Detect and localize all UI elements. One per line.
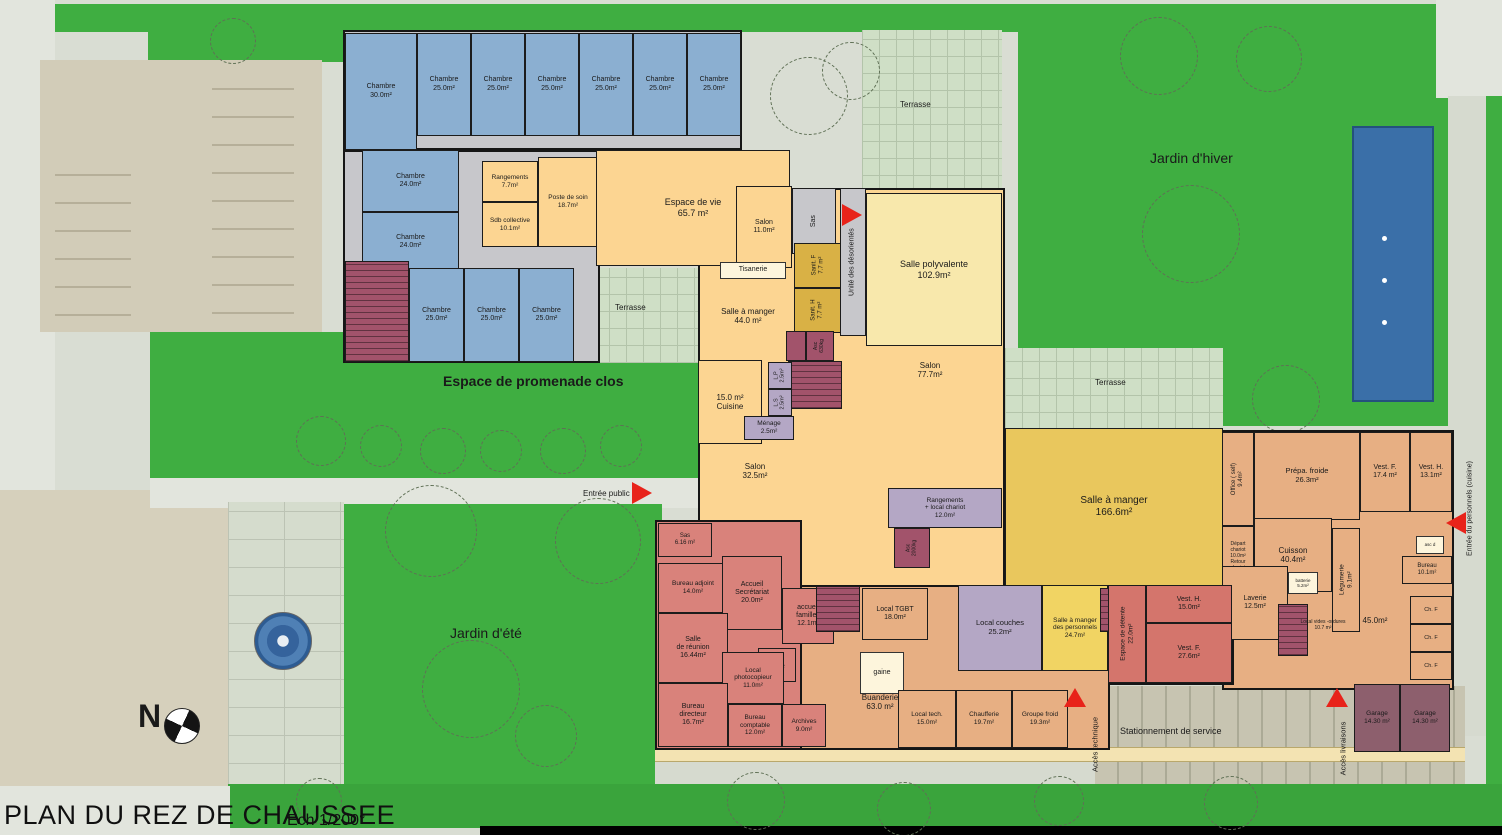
room-label: Bureau adjoint 14.0m²: [672, 580, 714, 595]
room-label: Ch. F: [1424, 607, 1437, 613]
room-label: Archives 9.0m²: [792, 718, 817, 733]
room-label: Rangements + local chariot 12.0m²: [925, 497, 965, 520]
room-label: Salon 77.7m²: [918, 361, 943, 380]
room-label: Office ( self) 9.4m²: [1231, 463, 1245, 495]
plan-scale: Ech 1/200°: [287, 812, 365, 830]
room-bureau: Bureau 10.1m²: [1402, 556, 1452, 584]
room-label: Espace de détente 22.0m²: [1119, 607, 1134, 661]
room-label: Chambre 25.0m²: [646, 76, 675, 93]
room-label: Vest. H. 13.1m²: [1419, 464, 1444, 481]
room-chambre: Chambre 25.0m²: [633, 33, 687, 136]
room-local: Local photocopieur 11.0m²: [722, 652, 784, 704]
room-rangements: Rangements + local chariot 12.0m²: [888, 488, 1002, 528]
room-label: 15.0 m² Cuisine: [716, 393, 743, 412]
room-l-s: L.S 2.5m²: [768, 389, 792, 416]
room-label: 45.0m²: [1363, 616, 1388, 625]
room-label: Salle de réunion 16.44m²: [676, 636, 709, 661]
rooms-layer: Chambre 30.0m²Chambre 25.0m²Chambre 25.0…: [0, 0, 1502, 835]
room-garage: Garage 14.30 m²: [1400, 684, 1450, 752]
room-chaufferie: Chaufferie 19.7m²: [956, 690, 1012, 748]
label-entree-public: Entrée public: [583, 489, 630, 498]
room-label: Accueil Secrétariat 20.0m²: [735, 581, 769, 606]
room-label: Vest. H. 15.0m²: [1177, 596, 1202, 613]
room-label: Asc 2000kg: [906, 540, 918, 556]
room-label: Chambre 24.0m²: [396, 234, 425, 251]
room-label: Salle à manger 166.6m²: [1080, 495, 1147, 519]
room-sanit-f: Sanit. F 7.7 m²: [794, 243, 842, 288]
room-label: Unité des désorientés: [849, 228, 857, 296]
room-label: Bureau comptable 12.0m²: [740, 714, 770, 737]
label-terrasse-mid: Terrasse: [1095, 378, 1126, 387]
room-accueil: Accueil Secrétariat 20.0m²: [722, 556, 782, 630]
room-asc: Asc 630kg: [806, 331, 834, 361]
label-terrasse-north: Terrasse: [615, 303, 646, 312]
room-label: Tisanerie: [739, 266, 768, 274]
room-bureau: Bureau directeur 16.7m²: [658, 683, 728, 747]
room-chambre: Chambre 25.0m²: [417, 33, 471, 136]
room-label: Sas: [810, 215, 818, 227]
room-chambre: Chambre 25.0m²: [409, 268, 464, 362]
room-chambre: Chambre 24.0m²: [362, 150, 459, 212]
room-label: Vest. F. 27.6m²: [1178, 645, 1201, 662]
room-garage: Garage 14.30 m²: [1354, 684, 1400, 752]
room-pr-pa-froide: Prépa. froide 26.3m²: [1254, 432, 1360, 520]
arrow-entree-public: [632, 482, 652, 504]
room-label: Salle polyvalente 102.9m²: [900, 259, 968, 280]
room-label: Groupe froid 19.3m²: [1022, 711, 1058, 726]
room-chambre: Chambre 25.0m²: [519, 268, 574, 362]
room-stair: [816, 586, 860, 632]
room-label: Légumerie 9.1m²: [1338, 565, 1353, 596]
room-label: Garage 14.30 m²: [1412, 710, 1438, 725]
room-label: Garage 14.30 m²: [1364, 710, 1390, 725]
room-label: Asc 630kg: [814, 339, 826, 353]
room-label: Laverie 12.5m²: [1244, 595, 1267, 612]
room-office-self: Office ( self) 9.4m²: [1222, 432, 1254, 526]
room-m-nage: Ménage 2.5m²: [744, 416, 794, 440]
compass-north-letter: N: [138, 698, 161, 735]
room-label: Espace de vie 65.7 m²: [665, 197, 722, 218]
room-salle-manger: Salle à manger des personnels 24.7m²: [1042, 585, 1108, 671]
room-poste-de-soin: Poste de soin 18.7m²: [538, 157, 598, 247]
room-asc-d: asc d: [1416, 536, 1444, 554]
room-label: asc d: [1425, 542, 1436, 547]
room-bureau: Bureau comptable 12.0m²: [728, 704, 782, 747]
label-jardin-ete: Jardin d'été: [450, 625, 522, 641]
label-acces-livraisons: Accès livraisons: [1339, 694, 1348, 804]
room-stair: [788, 361, 842, 409]
room-label: Sdb collective 10.1m²: [490, 217, 530, 232]
room-45-0m: 45.0m²: [1345, 608, 1405, 634]
room-salle-manger: Salle à manger 44.0 m²: [692, 296, 804, 336]
room-chambre: Chambre 25.0m²: [525, 33, 579, 136]
room-salon: Salon 11.0m²: [736, 186, 792, 268]
arrow-acces-technique: [1064, 688, 1086, 707]
room-vest-f: Vest. F. 17.4 m²: [1360, 432, 1410, 512]
room-chambre: Chambre 25.0m²: [464, 268, 519, 362]
room-label: Chambre 25.0m²: [592, 76, 621, 93]
room-vest-h: Vest. H. 15.0m²: [1146, 585, 1232, 623]
room-ch-f: Ch. F: [1410, 624, 1452, 652]
room-label: Bureau directeur 16.7m²: [679, 703, 706, 728]
room-label: Salon 11.0m²: [753, 219, 774, 236]
room-ch-f: Ch. F: [1410, 652, 1452, 680]
room-label: Bureau 10.1m²: [1417, 563, 1436, 577]
label-entree-personnel: Entrée du personnels (cuisine): [1467, 429, 1474, 589]
room-label: Chambre 25.0m²: [430, 76, 459, 93]
room-salle-polyvalente: Salle polyvalente 102.9m²: [866, 193, 1002, 346]
room-label: Poste de soin 18.7m²: [548, 194, 587, 209]
label-jardin-hiver: Jardin d'hiver: [1150, 150, 1233, 166]
room-chambre: Chambre 25.0m²: [471, 33, 525, 136]
room-chambre: Chambre 25.0m²: [579, 33, 633, 136]
arrow-entree-personnel: [1446, 512, 1466, 534]
label-acces-technique: Accès technique: [1091, 690, 1100, 800]
room-label: Salle à manger des personnels 24.7m²: [1053, 617, 1097, 640]
room-label: Chambre 24.0m²: [396, 173, 425, 190]
label-terrasse-top: Terrasse: [900, 100, 931, 109]
room-label: Salon 32.5m²: [743, 462, 768, 481]
room-label: Chambre 30.0m²: [367, 83, 396, 100]
room-label: Local TGBT 18.0m²: [876, 606, 913, 623]
floor-plan-canvas: Chambre 30.0m²Chambre 25.0m²Chambre 25.0…: [0, 0, 1502, 835]
room-salle-manger: Salle à manger 166.6m²: [1005, 428, 1223, 586]
room-bureau-adjoint: Bureau adjoint 14.0m²: [658, 563, 728, 613]
room-vest-h: Vest. H. 13.1m²: [1410, 432, 1452, 512]
arrow-acces-livraisons: [1326, 688, 1348, 707]
arrow-entree-sas: [842, 204, 862, 226]
room-espace-de-d-tente: Espace de détente 22.0m²: [1108, 585, 1146, 683]
room-label: Sas 6.16 m²: [675, 533, 695, 547]
room-salon: Salon 77.7m²: [890, 352, 970, 388]
room-rangements: Rangements 7.7m²: [482, 161, 538, 202]
room-tisanerie: Tisanerie: [720, 262, 786, 279]
room-label: Chambre 25.0m²: [484, 76, 513, 93]
room-label: Salle à manger 44.0 m²: [721, 307, 775, 326]
room-label: Local tech. 15.0m²: [911, 711, 942, 726]
room-label: Chambre 25.0m²: [700, 76, 729, 93]
room-local-tech: Local tech. 15.0m²: [898, 690, 956, 748]
room-groupe-froid: Groupe froid 19.3m²: [1012, 690, 1068, 748]
room-salle: Salle de réunion 16.44m²: [658, 613, 728, 683]
label-espace-promenade: Espace de promenade clos: [443, 373, 624, 389]
room-stair: [786, 331, 806, 361]
room-ch-f: Ch. F: [1410, 596, 1452, 624]
room-asc: Asc 2000kg: [894, 528, 930, 568]
room-label: Local photocopieur 11.0m²: [734, 667, 772, 690]
room-label: L.S 2.5m²: [774, 395, 787, 409]
room-label: Cuisson 40.4m²: [1279, 546, 1308, 565]
room-label: batterie 5.2m²: [1295, 578, 1310, 589]
room-label: Prépa. froide 26.3m²: [1286, 467, 1329, 485]
label-stationnement: Stationnement de service: [1120, 726, 1222, 736]
room-label: Local couches 25.2m²: [976, 619, 1024, 637]
room-label: Vest. F. 17.4 m²: [1373, 464, 1397, 481]
room-label: Chambre 25.0m²: [538, 76, 567, 93]
room-label: Sanit. H 7.7 m²: [811, 300, 825, 321]
room-label: Ménage 2.5m²: [757, 420, 781, 435]
room-label: Chambre 25.0m²: [422, 307, 451, 324]
compass-rose: [164, 708, 200, 744]
room-label: Sanit. F 7.7 m²: [811, 255, 825, 276]
room-label: Ch. F: [1424, 663, 1437, 669]
room-label: Chambre 25.0m²: [477, 307, 506, 324]
room-local-tgbt: Local TGBT 18.0m²: [862, 588, 928, 640]
room-stair: [345, 261, 409, 362]
room-l-p: L.P 2.5m²: [768, 362, 792, 389]
room-archives: Archives 9.0m²: [782, 704, 826, 747]
room-label: Rangements 7.7m²: [492, 174, 529, 189]
room-chambre: Chambre 25.0m²: [687, 33, 741, 136]
room-salon: Salon 32.5m²: [718, 455, 792, 487]
room-label: gaine: [873, 669, 890, 677]
room-label: Ch. F: [1424, 635, 1437, 641]
room-sdb-collective: Sdb collective 10.1m²: [482, 202, 538, 247]
room-label: Local vides -ordures 10.7 m²: [1300, 620, 1345, 632]
room-chambre: Chambre 30.0m²: [345, 33, 417, 150]
room-batterie: batterie 5.2m²: [1288, 572, 1318, 594]
room-vest-f: Vest. F. 27.6m²: [1146, 623, 1232, 683]
room-label: L.P 2.5m²: [774, 368, 787, 382]
room-local-couches: Local couches 25.2m²: [958, 585, 1042, 671]
room-label: Chaufferie 19.7m²: [969, 711, 999, 726]
room-sas: Sas 6.16 m²: [658, 523, 712, 557]
room-label: Chambre 25.0m²: [532, 307, 561, 324]
room-label: Buanderie 63.0 m²: [862, 693, 898, 712]
